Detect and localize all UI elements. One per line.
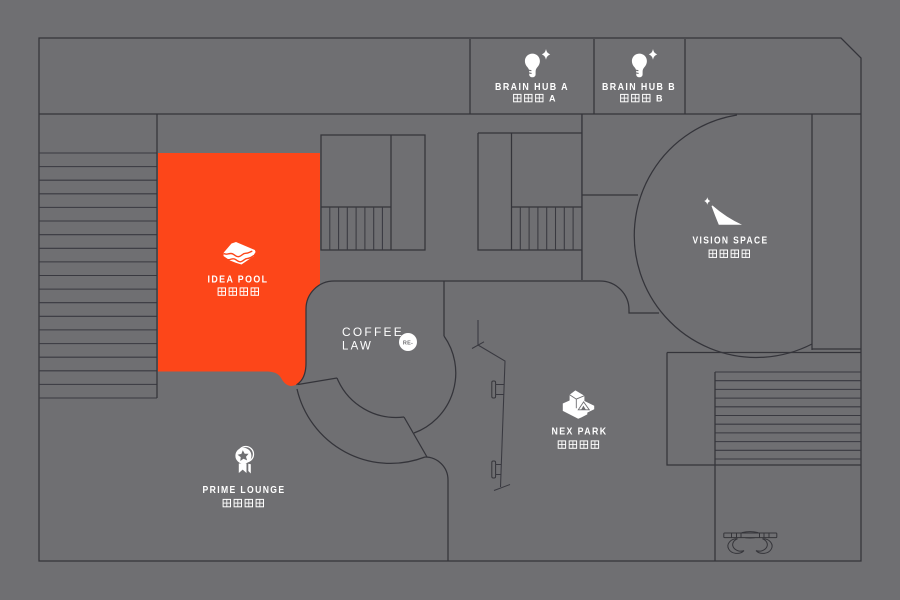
svg-text:BRAIN HUB B: BRAIN HUB B (602, 82, 676, 93)
svg-text:LAW: LAW (342, 341, 373, 353)
svg-text:PRIME LOUNGE: PRIME LOUNGE (203, 485, 286, 496)
svg-text:RE-: RE- (403, 340, 413, 346)
svg-text:NEX PARK: NEX PARK (552, 427, 608, 438)
svg-text:COFFEE: COFFEE (342, 327, 404, 339)
svg-text:B: B (656, 94, 664, 104)
svg-text:BRAIN HUB A: BRAIN HUB A (495, 82, 569, 93)
svg-text:VISION SPACE: VISION SPACE (693, 236, 769, 247)
svg-text:A: A (549, 94, 557, 104)
svg-text:IDEA POOL: IDEA POOL (208, 275, 269, 286)
